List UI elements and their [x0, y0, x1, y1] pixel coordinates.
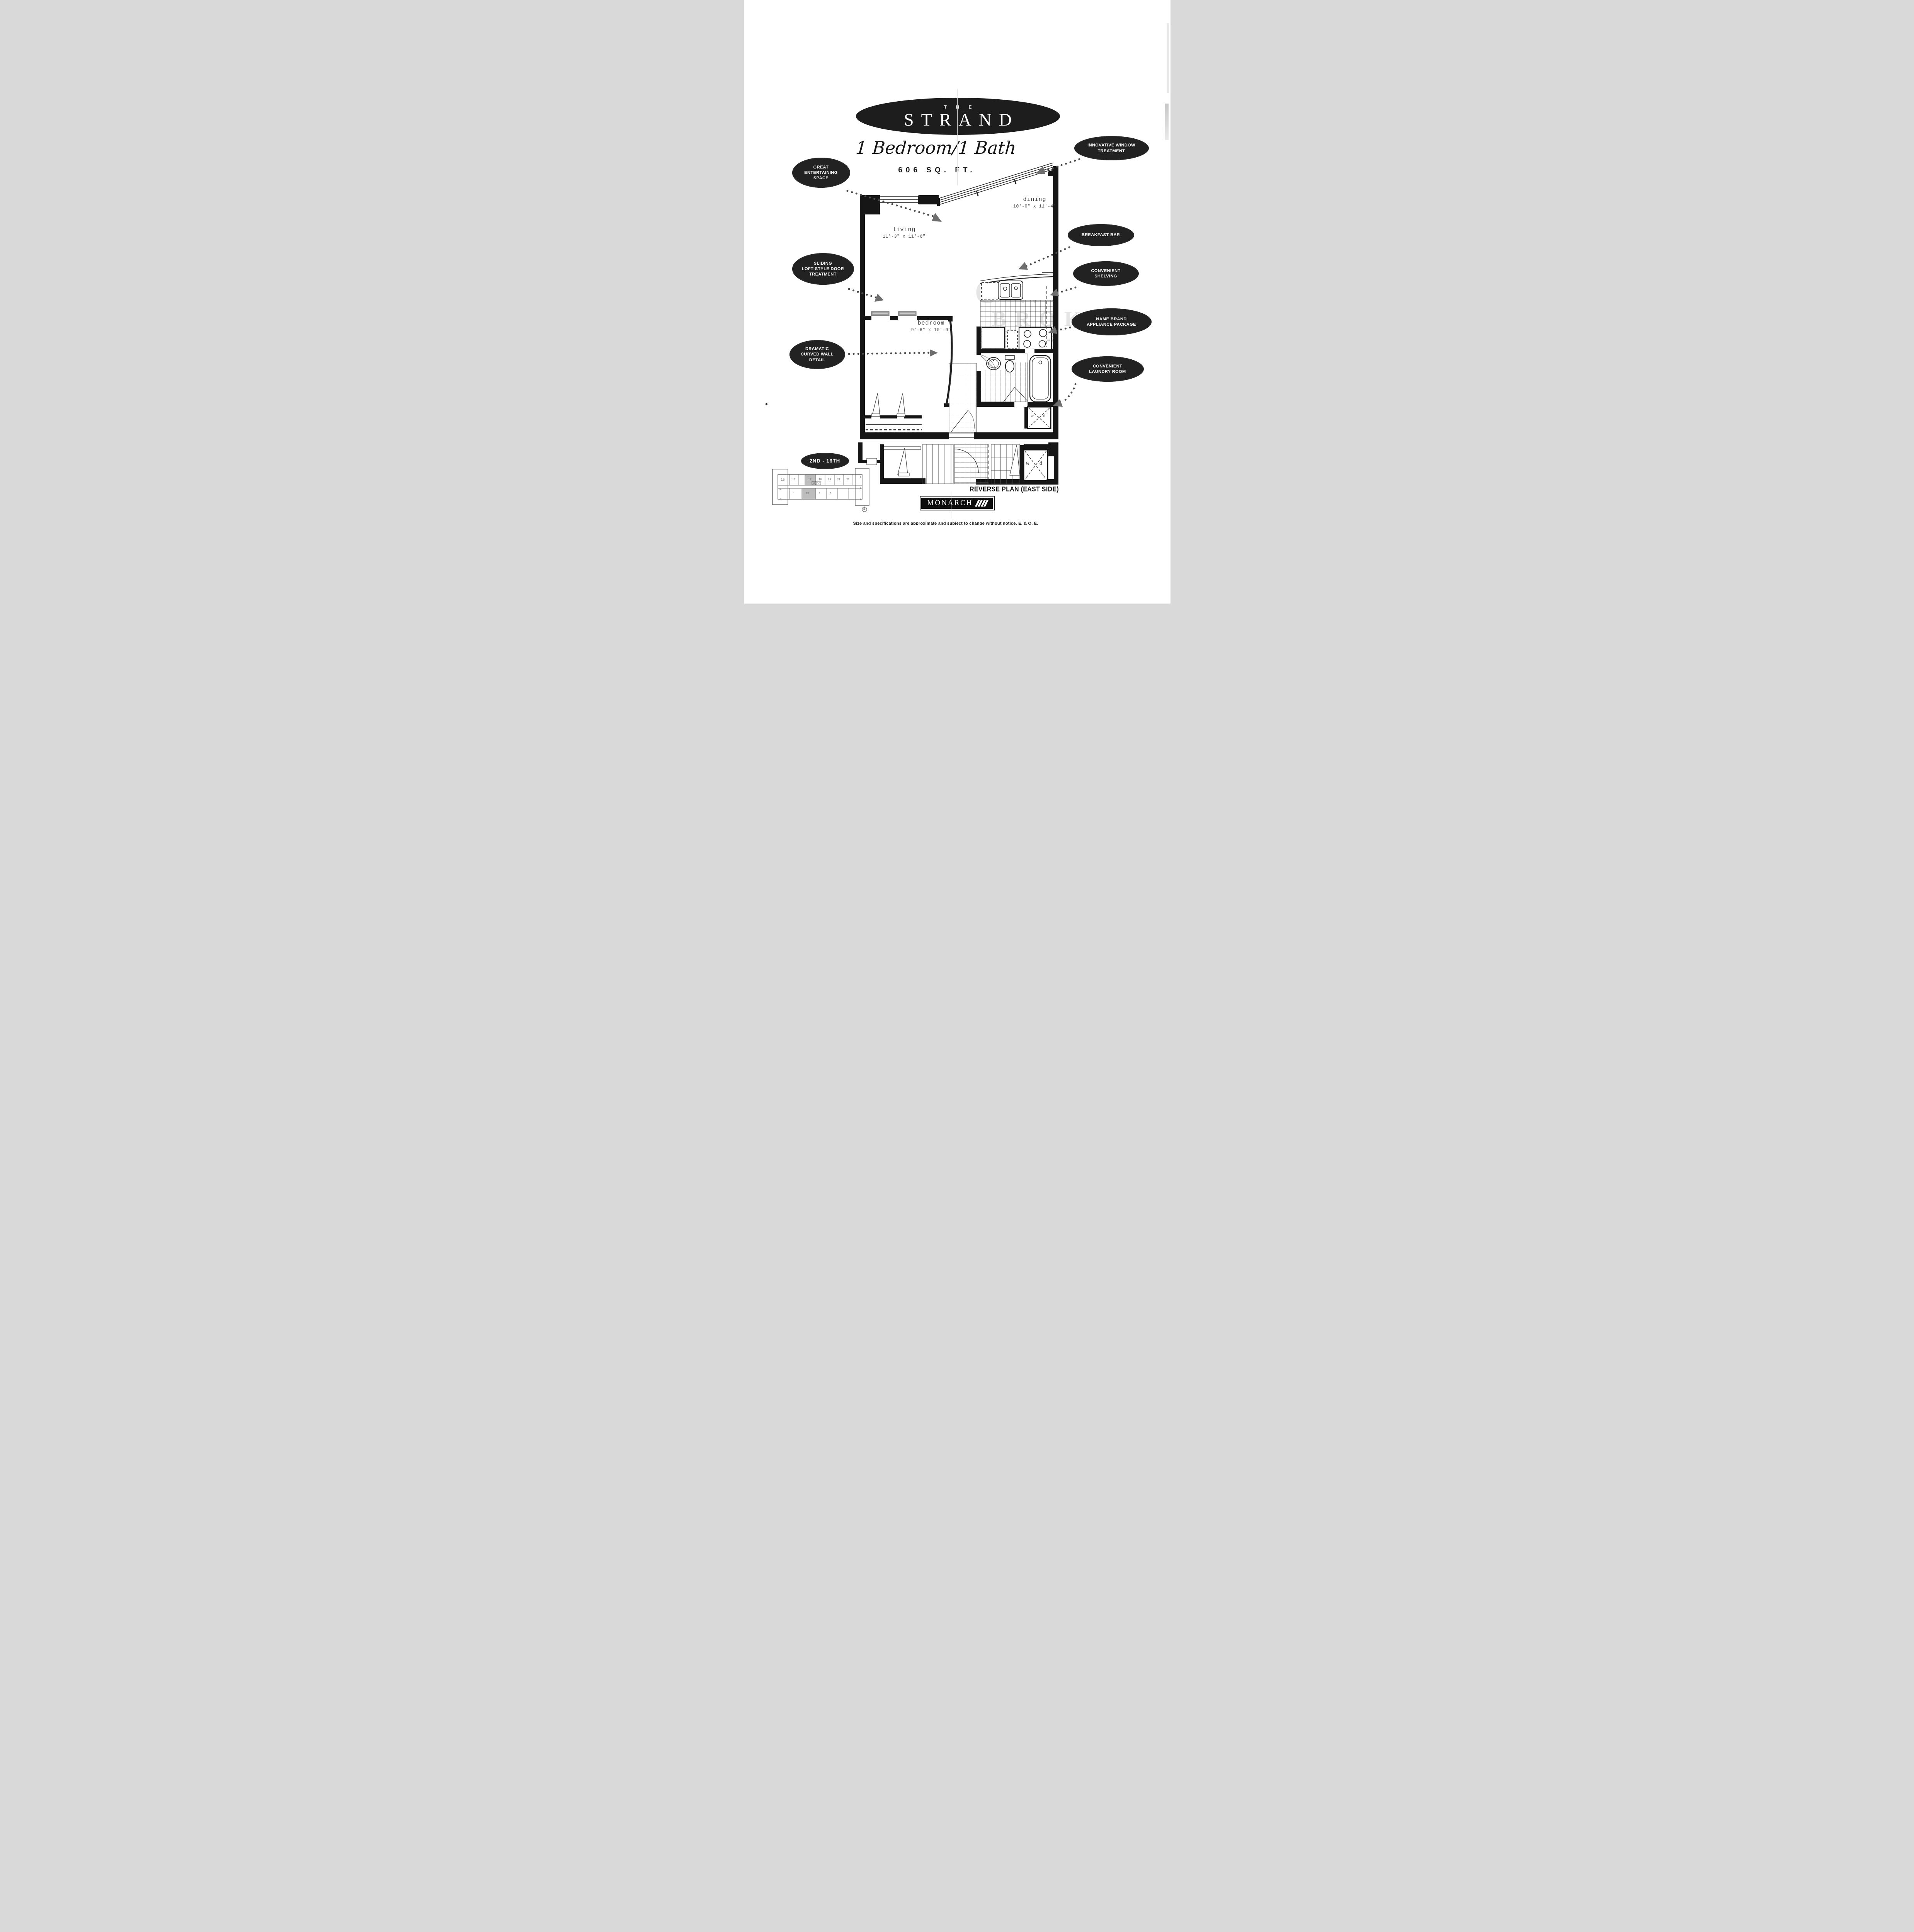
- callout-label: CONVENIENT SHELVING: [1091, 268, 1120, 279]
- room-label-bedroom: bedroom 9'-6" x 10'-9": [906, 320, 956, 333]
- room-dims: 9'-6" x 10'-9": [906, 328, 956, 333]
- keyplan-unit: 1: [793, 492, 795, 495]
- double-sink-icon: [998, 281, 1023, 299]
- callout-dramatic-curved-wall: DRAMATIC CURVED WALL DETAIL: [789, 340, 845, 369]
- keyplan-unit: 16: [793, 478, 796, 481]
- floor-range-badge: 2ND - 16TH: [801, 453, 849, 469]
- callout-convenient-laundry-room: CONVENIENT LAUNDRY ROOM: [1072, 356, 1144, 382]
- page-title: STRAND: [897, 111, 1019, 129]
- kitchen: [980, 273, 1053, 353]
- callout-label: SLIDING LOFT-STYLE DOOR TREATMENT: [802, 261, 844, 277]
- flyer-page: OW BROK: [744, 0, 1171, 604]
- floor-range-label: 2ND - 16TH: [810, 458, 840, 464]
- bathroom: [977, 354, 1051, 407]
- keyplan-unit: 4: [780, 498, 782, 500]
- callout-innovative-window-treatment: INNOVATIVE WINDOW TREATMENT: [1074, 136, 1149, 160]
- bathtub-icon: [1030, 355, 1051, 402]
- toilet-icon: [1005, 355, 1014, 372]
- keyplan-unit: 5: [860, 498, 861, 500]
- unit-area: 606 SQ. FT.: [871, 166, 1003, 175]
- kitchen-cabinets: [982, 328, 1017, 348]
- callout-label: NAME BRAND APPLIANCE PACKAGE: [1087, 316, 1136, 328]
- title-oval: THE STRAND: [856, 98, 1060, 135]
- callout-label: INNOVATIVE WINDOW TREATMENT: [1087, 143, 1135, 154]
- keyplan-unit: 6: [860, 487, 861, 490]
- keyplan-unit: 17: [808, 478, 812, 481]
- washer-label: w: [1031, 413, 1034, 419]
- keyplan-unit: 22: [847, 478, 850, 481]
- window-band-left: [879, 196, 919, 204]
- key-plan: [772, 468, 869, 512]
- compass-label: S: [863, 507, 865, 510]
- keyplan-unit: 15: [781, 478, 785, 481]
- callout-label: BREAKFAST BAR: [1082, 232, 1120, 238]
- brand-name: MONARCH: [927, 499, 973, 507]
- room-dims: 10'-0" x 11'-4": [1010, 204, 1060, 209]
- unit-type-subtitle: 1 Bedroom/1 Bath: [812, 138, 1060, 158]
- room-label-living: living 11'-3" x 11'-6": [879, 226, 929, 239]
- sliding-doors-icon: [871, 311, 916, 316]
- closet: [866, 393, 922, 430]
- room-name: living: [879, 226, 929, 233]
- scan-streak: [1167, 23, 1169, 93]
- keyplan-unit: 18: [819, 478, 822, 481]
- title-the: THE: [935, 104, 981, 110]
- washer-label: w: [1026, 461, 1029, 466]
- dryer-label: d: [1043, 413, 1046, 419]
- monarch-logo: MONARCH: [920, 496, 995, 510]
- keyplan-unit: 14: [779, 488, 782, 491]
- keyplan-unit: 21: [837, 478, 840, 481]
- room-dims: 11'-3" x 11'-6": [879, 234, 929, 239]
- callout-label: DRAMATIC CURVED WALL DETAIL: [801, 346, 834, 363]
- scan-speck: [766, 403, 767, 405]
- callout-great-entertaining-space: GREAT ENTERTAINING SPACE: [792, 158, 850, 188]
- callout-sliding-loft-door: SLIDING LOFT-STYLE DOOR TREATMENT: [792, 253, 854, 285]
- disclaimer-text: Size and specifications are approximate …: [853, 521, 1067, 525]
- callout-label: GREAT ENTERTAINING SPACE: [804, 165, 837, 181]
- keyplan-unit: 1: [860, 476, 861, 479]
- dryer-label: d: [1040, 461, 1043, 466]
- scan-crease: [957, 89, 958, 185]
- callout-name-brand-appliance: NAME BRAND APPLIANCE PACKAGE: [1072, 308, 1152, 335]
- keyplan-unit: 2: [830, 492, 831, 495]
- callout-convenient-shelving: CONVENIENT SHELVING: [1073, 261, 1139, 286]
- room-name: bedroom: [906, 320, 956, 327]
- room-name: dining: [1010, 196, 1060, 203]
- keyplan-unit: 8: [819, 492, 820, 495]
- entry-hall-tiles: [949, 363, 977, 432]
- callout-breakfast-bar: BREAKFAST BAR: [1068, 224, 1134, 246]
- monarch-logo-mark-icon: [977, 500, 987, 507]
- room-label-dining: dining 10'-0" x 11'-4": [1010, 196, 1060, 209]
- callout-label: CONVENIENT LAUNDRY ROOM: [1089, 364, 1126, 375]
- monarch-logo-core: MONARCH: [921, 498, 993, 509]
- keyplan-unit: 19: [828, 478, 831, 481]
- reverse-plan-label: REVERSE PLAN (EAST SIDE): [968, 485, 1058, 493]
- refrigerator-icon: [982, 282, 999, 300]
- scan-streak: [1165, 104, 1169, 140]
- keyplan-unit: 10: [806, 492, 809, 495]
- scan-crease: [951, 492, 951, 519]
